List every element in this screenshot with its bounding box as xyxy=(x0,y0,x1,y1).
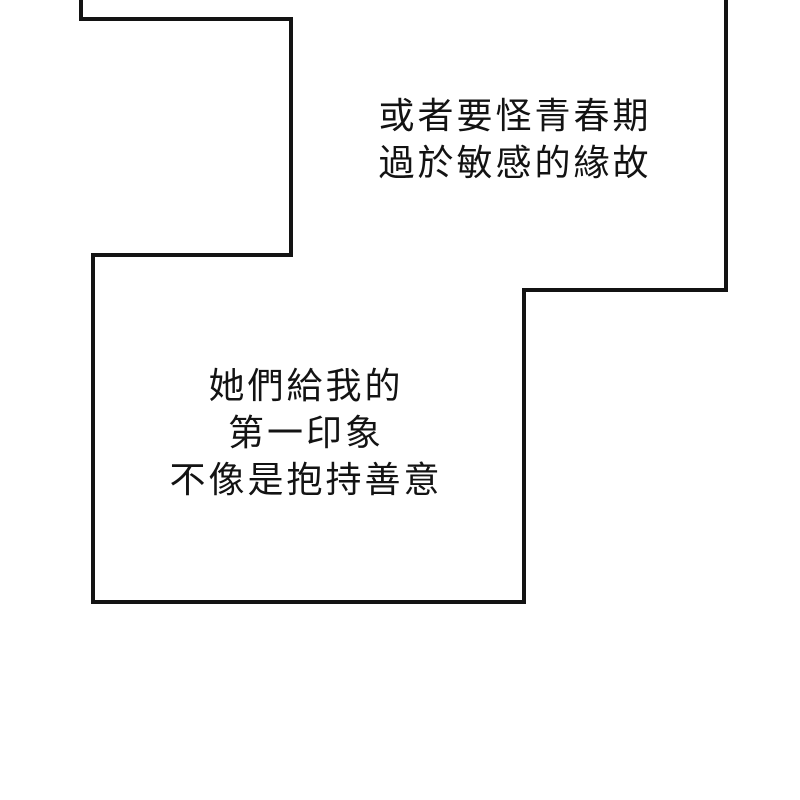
narration-line: 過於敏感的緣故 xyxy=(378,140,651,187)
narration-line: 第一印象 xyxy=(169,410,442,457)
panel-outline xyxy=(81,0,726,602)
narration-line: 不像是抱持善意 xyxy=(169,457,442,504)
comic-page: 或者要怪青春期 過於敏感的緣故 她們給我的 第一印象 不像是抱持善意 xyxy=(0,0,800,800)
narration-line: 或者要怪青春期 xyxy=(378,93,651,140)
narration-line: 她們給我的 xyxy=(169,363,442,410)
narration-block-top: 或者要怪青春期 過於敏感的緣故 xyxy=(378,93,651,187)
narration-block-bottom: 她們給我的 第一印象 不像是抱持善意 xyxy=(169,363,442,504)
